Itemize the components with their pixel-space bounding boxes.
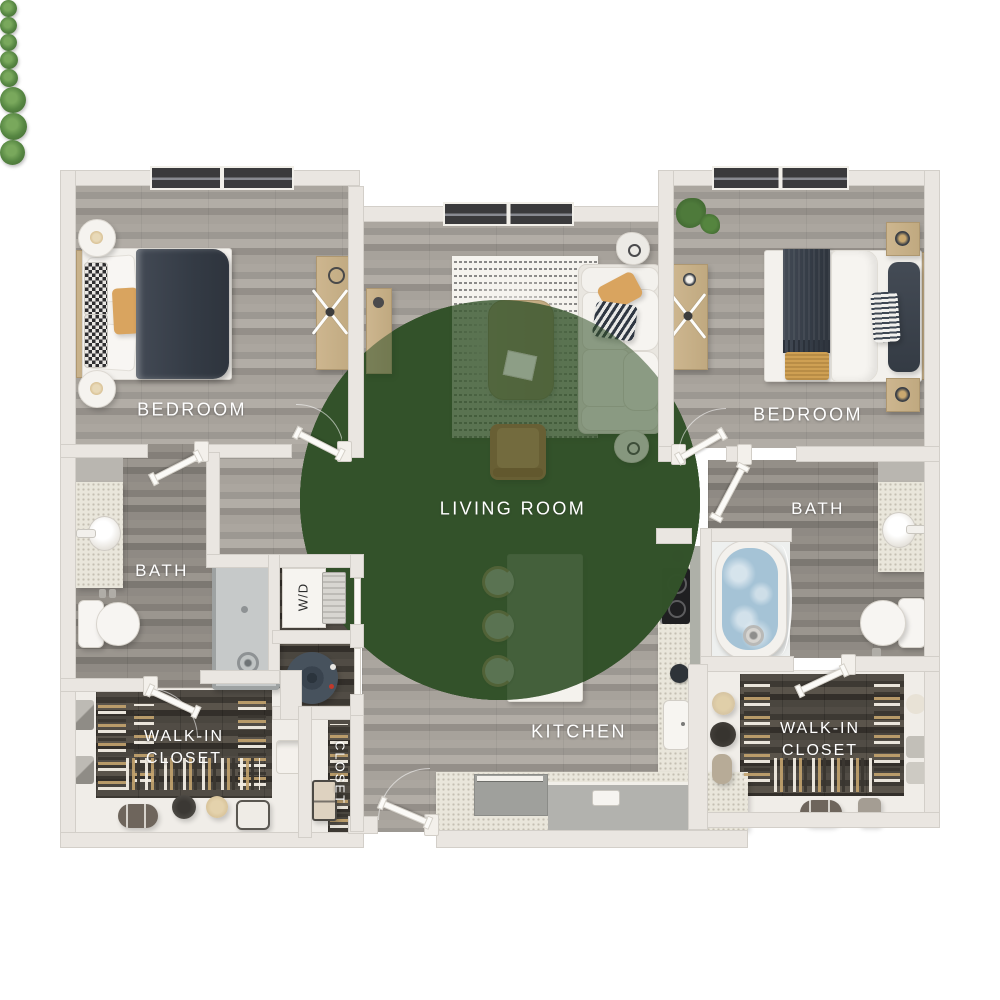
wall <box>658 170 674 462</box>
vanity-faucet <box>76 529 96 538</box>
nightstand <box>886 378 920 412</box>
wall <box>350 554 364 578</box>
wall <box>200 670 280 684</box>
nightstand <box>78 219 116 257</box>
laundry-closet-door <box>354 578 361 626</box>
room-label-bath-left: BATH <box>135 561 189 581</box>
desk-lamp <box>683 273 696 286</box>
coffee-table-plant <box>0 113 27 140</box>
closet-hanging-clothes <box>98 700 126 792</box>
closet-hanging-clothes <box>744 684 770 784</box>
console-decor <box>373 297 384 308</box>
wall <box>298 706 312 838</box>
room-label-kitchen: KITCHEN <box>531 722 627 743</box>
nightstand <box>886 222 920 256</box>
wall <box>700 812 940 828</box>
walk-in-line2: CLOSET <box>782 742 858 759</box>
wall <box>700 656 794 672</box>
counter-plant <box>0 17 17 34</box>
hat <box>206 796 228 818</box>
room-label-walk-in-closet-left: WALK-IN CLOSET <box>144 726 224 770</box>
table-lamp <box>90 231 103 244</box>
closet-hanging-clothes <box>874 684 900 784</box>
toilet-right-bowl <box>860 600 906 646</box>
wall <box>268 554 280 684</box>
room-label-closet: CLOSET <box>333 741 348 805</box>
wall <box>852 656 940 672</box>
walk-in-line1: WALK-IN <box>144 728 224 745</box>
kitchen-sink <box>663 700 690 750</box>
window <box>443 202 574 226</box>
room-label-walk-in-closet-right: WALK-IN CLOSET <box>780 718 860 762</box>
vanity-plumbing <box>99 589 106 598</box>
closet-shelf-item <box>712 754 732 784</box>
water-heater-valve <box>330 664 336 670</box>
counter-plant <box>0 34 17 51</box>
bed-left-checkered-pillow <box>84 314 108 368</box>
vanity-backsplash <box>76 455 123 483</box>
wall <box>206 452 220 568</box>
hat <box>710 722 736 747</box>
wall <box>700 528 712 668</box>
vanity-plumbing <box>109 589 116 598</box>
wall <box>60 170 76 848</box>
floor-plan: W/D <box>0 0 1000 1000</box>
wall <box>348 186 364 458</box>
closet-shelf-item <box>906 694 926 714</box>
wall <box>60 678 148 692</box>
vanity-faucet <box>906 525 926 534</box>
counter-kettle <box>670 664 689 683</box>
counter-plant <box>0 51 18 69</box>
suitcase <box>236 800 270 830</box>
washer-dryer-label: W/D <box>296 583 311 611</box>
hat <box>172 795 196 819</box>
wall <box>688 664 708 830</box>
desk-decor <box>328 267 345 284</box>
wall <box>796 446 940 462</box>
console-plant <box>0 140 25 165</box>
duffel-bag <box>118 804 158 828</box>
sink-drain <box>681 722 685 726</box>
wall <box>60 832 364 848</box>
bed-right-throw-blanket <box>783 249 830 353</box>
toilet-left-bowl <box>96 602 140 646</box>
walk-in-line2: CLOSET <box>146 750 222 767</box>
walk-in-line1: WALK-IN <box>780 720 860 737</box>
bed-right-mustard-throw <box>785 352 829 380</box>
water-heater-valve-red <box>329 684 334 689</box>
window <box>150 166 294 190</box>
bedroom-right-plant <box>700 214 720 234</box>
tub-drain <box>743 625 764 646</box>
wall <box>60 444 148 458</box>
closet-shelf-box <box>73 700 94 730</box>
wall <box>656 528 692 544</box>
refrigerator <box>474 774 548 816</box>
island-plant <box>0 87 26 113</box>
shower-control <box>241 606 248 613</box>
closet-shelf-box <box>74 756 94 784</box>
wall <box>350 624 364 648</box>
wall <box>350 694 364 716</box>
table-lamp <box>895 387 910 402</box>
refrigerator-handle <box>477 776 543 782</box>
room-label-living-room: LIVING ROOM <box>440 499 586 520</box>
counter-plant <box>0 0 17 17</box>
room-label-bath-right: BATH <box>791 499 845 519</box>
table-lamp <box>895 231 910 246</box>
counter-plant <box>0 69 18 87</box>
hat <box>712 692 735 715</box>
wall <box>436 830 748 848</box>
laundry-closet-door <box>354 648 361 696</box>
table-lamp <box>90 382 103 395</box>
bed-right-striped-pillow <box>870 291 900 343</box>
closet-hanging-clothes <box>772 758 872 792</box>
washer-dryer-machine-top <box>322 572 346 624</box>
side-table <box>616 232 650 265</box>
wall <box>272 630 356 644</box>
shower-curtain-rail <box>768 545 792 655</box>
wall <box>350 714 364 832</box>
room-label-bedroom-left: BEDROOM <box>137 400 247 421</box>
wall <box>700 528 792 542</box>
counter-sink-bottom <box>592 790 620 806</box>
wall <box>924 170 940 828</box>
room-label-bedroom-right: BEDROOM <box>753 405 863 426</box>
bed-left-checkered-pillow <box>84 262 108 316</box>
bed-left-duvet <box>136 249 229 379</box>
wall <box>206 554 356 568</box>
window <box>712 166 849 190</box>
side-table-bowl <box>628 244 641 257</box>
nightstand <box>78 370 116 408</box>
